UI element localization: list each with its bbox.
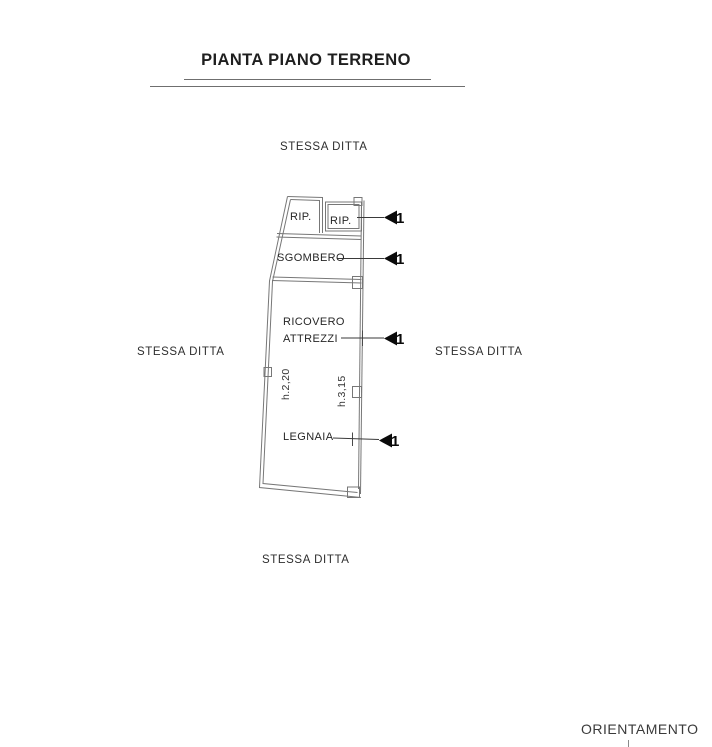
- plan-walls: [260, 197, 365, 498]
- room-label-rip-left: RIP.: [290, 211, 312, 223]
- floorplan-drawing: [0, 0, 712, 747]
- room-label-rip-right: RIP.: [330, 215, 352, 227]
- orientation-label: ORIENTAMENTO: [581, 721, 699, 737]
- wall-top: [288, 197, 323, 201]
- room-label-sgombero: SGOMBERO: [277, 252, 345, 264]
- pilaster-right: [353, 387, 362, 398]
- wall-rip-divider: [320, 197, 323, 233]
- wall-below-rip: [277, 234, 362, 240]
- room-label-ricovero-attrezzi: RICOVERO ATTREZZI: [283, 314, 345, 347]
- access-number: 1: [396, 210, 404, 226]
- floorplan-page: PIANTA PIANO TERRENO STESSA DITTA STESSA…: [0, 0, 712, 747]
- access-number: 1: [396, 251, 404, 267]
- room-label-line2: ATTREZZI: [283, 331, 345, 348]
- leader-legnaia: [333, 438, 379, 440]
- access-number: 1: [396, 331, 404, 347]
- wall-outer-left-bottom: [260, 197, 362, 498]
- access-marker-ricovero: 1: [383, 330, 407, 347]
- wall-below-sgombero: [272, 277, 362, 283]
- access-marker-sgombero: 1: [383, 250, 407, 267]
- room-label-line1: RICOVERO: [283, 314, 345, 331]
- room-label-legnaia: LEGNAIA: [283, 431, 334, 443]
- access-marker-legnaia: 1: [378, 432, 402, 449]
- access-marker-rip: 1: [383, 209, 407, 226]
- height-annotation-left: h.2,20: [280, 368, 292, 400]
- north-arrow-tick: [628, 740, 629, 747]
- height-annotation-right: h.3,15: [336, 375, 348, 407]
- access-number: 1: [391, 433, 399, 449]
